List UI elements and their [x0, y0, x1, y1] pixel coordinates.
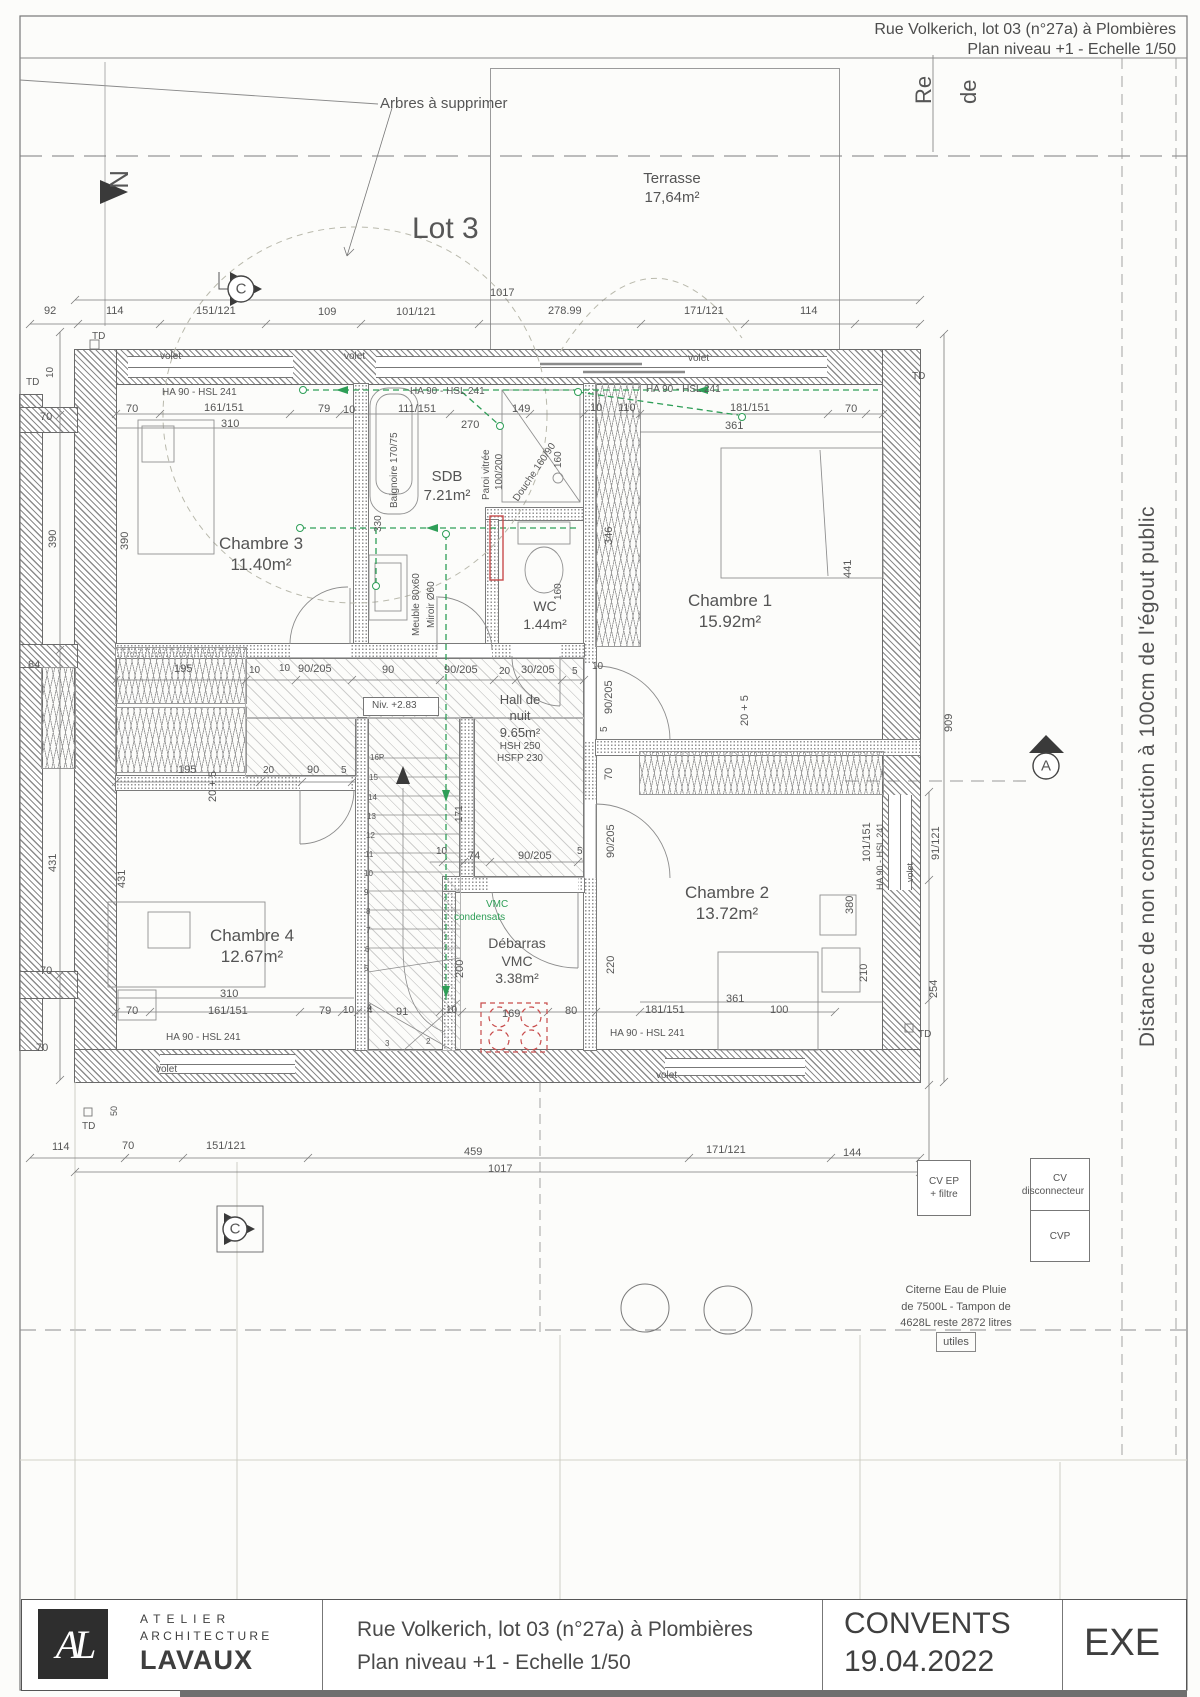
- dim-label: 90/205: [444, 665, 478, 676]
- dim-label: 254: [929, 980, 940, 998]
- cvp-box: CVP: [1030, 1210, 1090, 1262]
- dim-label: TD: [92, 332, 105, 342]
- dim-label: 270: [461, 420, 479, 431]
- door-opening: [584, 801, 596, 878]
- room-label-line: 12.67m²: [210, 946, 294, 967]
- room-label-line: Terrasse: [643, 170, 701, 189]
- level-note: Niv. +2.83: [372, 701, 417, 711]
- room-label-chambre-2: Chambre 213.72m²: [685, 882, 769, 925]
- dim-label: 4: [367, 1006, 373, 1016]
- room-label-line: 3.38m²: [488, 970, 546, 988]
- window-bottom-1: [160, 1054, 295, 1074]
- door-opening: [437, 644, 492, 658]
- sheet-header-line2: Plan niveau +1 - Echelle 1/50: [874, 40, 1176, 60]
- room-label-line: 9.65m²: [497, 725, 543, 741]
- door-opening: [512, 644, 560, 658]
- dim-label: 10: [446, 1006, 457, 1016]
- dim-label: 10: [590, 403, 602, 414]
- dim-label: 74: [468, 851, 480, 862]
- dim-label: 161/151: [204, 403, 244, 414]
- dim-label: 91/121: [931, 826, 942, 860]
- dim-label: 346: [604, 527, 615, 545]
- dim-label: Douche 160/90: [512, 442, 558, 504]
- dim-label: 92: [44, 306, 56, 317]
- dim-label: 20 + 5: [740, 695, 751, 726]
- dim-label: 310: [221, 419, 239, 430]
- stair-step-number: 2: [426, 1038, 430, 1046]
- room-label-chambre-4: Chambre 412.67m²: [210, 925, 294, 968]
- dim-label: 90/205: [518, 851, 552, 862]
- dim-label: 171/121: [684, 306, 724, 317]
- partition-wc-top: [486, 508, 586, 520]
- dim-label: TD: [26, 378, 39, 388]
- dim-label: 80: [565, 1006, 577, 1017]
- door-opening: [290, 644, 350, 658]
- dim-label: 330: [374, 515, 384, 532]
- dim-label: 70: [36, 1043, 48, 1054]
- dim-label: 70: [40, 966, 52, 977]
- dim-label: 101/121: [396, 307, 436, 318]
- stair-step-number: 5: [364, 965, 368, 973]
- room-label-line: SDB: [424, 468, 471, 487]
- dim-label: 160: [554, 451, 564, 468]
- dim-label: 90/205: [298, 664, 332, 675]
- dim-label: 20: [499, 667, 510, 677]
- architect-name-line: ARCHITECTURE: [140, 1629, 272, 1643]
- dim-label: 10: [436, 847, 447, 857]
- dim-label: TD: [82, 1122, 95, 1132]
- stair-step-number: 9: [364, 889, 368, 897]
- title-block-divider: [1062, 1600, 1063, 1690]
- architect-name-line: ATELIER: [140, 1612, 272, 1626]
- room-label-line: Chambre 4: [210, 925, 294, 946]
- dim-label: 109: [318, 307, 336, 318]
- dim-label: 5: [341, 766, 347, 776]
- room-label-sub: HSH 250: [497, 741, 543, 753]
- stair-step-number: 7: [366, 927, 370, 935]
- room-label-line: Chambre 3: [219, 533, 303, 554]
- dim-label: HA 90 - HSL 241: [162, 388, 237, 398]
- partition-wc-left: [486, 520, 498, 644]
- drawing-status: EXE: [1084, 1622, 1160, 1665]
- cv-ep-label: + filtre: [918, 1188, 970, 1201]
- dim-label: 459: [464, 1147, 482, 1158]
- dim-label: 441: [843, 560, 854, 578]
- drawing-sheet: Rue Volkerich, lot 03 (n°27a) à Plombièr…: [0, 0, 1200, 1697]
- cistern-line: Citerne Eau de Pluie: [876, 1282, 1036, 1299]
- room-label-line: 1.44m²: [523, 616, 567, 634]
- stair-floor: [368, 718, 460, 1050]
- sheet-header-line1: Rue Volkerich, lot 03 (n°27a) à Plombièr…: [874, 20, 1176, 40]
- neighbour-wall: [20, 395, 42, 1050]
- dim-label: HA 90 - HSL 241: [166, 1033, 241, 1043]
- cv-disconnecteur-label: CV: [1031, 1172, 1089, 1185]
- cvp-label: CVP: [1031, 1230, 1089, 1243]
- dim-label: 161/151: [208, 1006, 248, 1017]
- dim-label: 181/151: [730, 403, 770, 414]
- dim-label: 5: [572, 667, 578, 677]
- dim-label: 909: [944, 714, 955, 732]
- dim-label: 10: [592, 662, 603, 672]
- client-name: CONVENTS: [844, 1605, 1011, 1643]
- stair-step-number: 8: [366, 908, 370, 916]
- dim-label: 431: [48, 854, 59, 872]
- dim-label: 114: [106, 306, 124, 317]
- dim-label: Baignoire 170/75: [390, 432, 400, 508]
- project-title: Rue Volkerich, lot 03 (n°27a) à Plombièr…: [357, 1614, 753, 1679]
- title-block-divider: [322, 1600, 323, 1690]
- room-label-line: 13.72m²: [685, 903, 769, 924]
- cistern-line: de 7500L - Tampon de: [876, 1299, 1036, 1316]
- dim-label: 10: [279, 664, 290, 674]
- dim-label: 70: [126, 404, 138, 415]
- dim-label: volet: [344, 352, 365, 362]
- dim-label: 84: [28, 660, 40, 671]
- dim-label: 90/205: [604, 680, 615, 714]
- room-label-chambre-1: Chambre 115.92m²: [688, 590, 772, 633]
- dim-label: 20: [263, 766, 274, 776]
- cv-ep-box: CV EP + filtre: [917, 1160, 971, 1216]
- stair-step-number: 16P: [370, 754, 384, 762]
- window-top-1: [128, 356, 293, 378]
- dim-label: 200: [455, 960, 466, 978]
- window-top-2: [376, 356, 827, 378]
- dim-label: HA 90 - HSL 241: [876, 823, 885, 890]
- trees-note: Arbres à supprimer: [380, 96, 508, 111]
- closet-hall-left-1: [116, 648, 246, 703]
- dim-label: 70: [604, 768, 615, 780]
- dim-label: 90: [307, 765, 319, 776]
- exterior-wall-left: [75, 350, 116, 1050]
- dim-label: 70: [126, 1006, 138, 1017]
- room-label-line: 15.92m²: [688, 611, 772, 632]
- dim-label: volet: [906, 863, 915, 882]
- dim-label: HA 90 - HSL 241: [410, 387, 485, 397]
- room-label-line: Hall de: [497, 692, 543, 708]
- room-label-chambre-3: Chambre 311.40m²: [219, 533, 303, 576]
- dim-label: 79: [319, 1006, 331, 1017]
- closet-chambre2: [640, 752, 883, 794]
- dim-label: 114: [800, 306, 818, 317]
- sheet-header: Rue Volkerich, lot 03 (n°27a) à Plombièr…: [874, 20, 1176, 60]
- lot-label: Lot 3: [412, 214, 479, 244]
- stair-step-number: 10: [364, 870, 373, 878]
- dim-label: 151/121: [196, 306, 236, 317]
- dim-label: Meuble 80x60: [412, 573, 422, 636]
- cv-ep-label: CV EP: [918, 1175, 970, 1188]
- dim-label: 70: [122, 1141, 134, 1152]
- stair-wall-left: [356, 718, 368, 1050]
- door-opening: [488, 877, 578, 892]
- architect-logo: AL: [38, 1609, 108, 1679]
- dim-label: 20 + 5: [208, 771, 219, 802]
- dim-label: 100/200: [495, 454, 505, 490]
- dim-label: volet: [160, 352, 181, 362]
- room-label-hall-de-nuit: Hall denuit9.65m²HSH 250HSFP 230: [497, 692, 543, 765]
- dim-label: 91: [396, 1007, 408, 1018]
- room-label-line: 7.21m²: [424, 487, 471, 506]
- exterior-wall-right: [883, 350, 920, 1050]
- client-block: CONVENTS 19.04.2022: [844, 1605, 1011, 1680]
- dim-label: 10: [249, 666, 260, 676]
- section-marker-letter: C: [236, 282, 247, 297]
- room-label-line: 11.40m²: [219, 554, 303, 575]
- dim-label: 10: [343, 405, 355, 416]
- vmc-note: condensats: [454, 913, 505, 923]
- room-label-terrasse: Terrasse17,64m²: [643, 170, 701, 208]
- issue-date: 19.04.2022: [844, 1643, 1011, 1681]
- stair-step-number: 3: [385, 1040, 389, 1048]
- stair-step-number: 12: [366, 832, 375, 840]
- dim-label: 149: [512, 404, 530, 415]
- room-label-line: Débarras: [488, 935, 546, 953]
- stair-step-number: 15: [369, 774, 378, 782]
- dim-label: 171/121: [706, 1145, 746, 1156]
- window-bottom-2: [665, 1058, 805, 1076]
- dim-label: 169: [502, 1009, 520, 1020]
- project-title-line2: Plan niveau +1 - Echelle 1/50: [357, 1647, 753, 1680]
- room-label-line: 17,64m²: [643, 189, 701, 208]
- dim-label: 210: [859, 964, 870, 982]
- dim-label: 50: [110, 1106, 119, 1116]
- closet-chambre1: [596, 384, 640, 646]
- section-marker-letter: C: [230, 1222, 241, 1237]
- project-title-line1: Rue Volkerich, lot 03 (n°27a) à Plombièr…: [357, 1614, 753, 1647]
- dim-label: TD: [912, 372, 925, 382]
- partition-ch3-sdb: [354, 384, 368, 644]
- dim-label: 90: [382, 665, 394, 676]
- terrace-outline: [490, 68, 840, 352]
- dim-label: 90/205: [606, 824, 617, 858]
- dim-label: 114: [52, 1142, 70, 1153]
- dim-label: 431: [117, 870, 128, 888]
- dim-label: 1017: [490, 288, 514, 299]
- cistern-line: utiles: [936, 1332, 976, 1353]
- edge-label: Re: [913, 76, 935, 104]
- title-block: AL ATELIER ARCHITECTURE LAVAUX Rue Volke…: [21, 1599, 1187, 1691]
- dim-label: 70: [40, 412, 52, 423]
- room-label-line: nuit: [497, 708, 543, 724]
- stair-step-number: 14: [368, 794, 377, 802]
- dim-label: 110: [618, 403, 636, 414]
- dim-label: 195: [174, 664, 192, 675]
- room-label-sub: HSFP 230: [497, 753, 543, 765]
- dim-label: 111/151: [398, 404, 436, 415]
- dim-label: 70: [845, 404, 857, 415]
- cv-disconnecteur-label: disconnecteur: [1017, 1185, 1089, 1198]
- dim-label: volet: [156, 1065, 177, 1075]
- dim-label: 278.99: [548, 306, 582, 317]
- room-label-line: Chambre 1: [688, 590, 772, 611]
- dim-label: 181/151: [645, 1005, 685, 1016]
- door-opening: [584, 663, 596, 740]
- north-letter: N: [106, 170, 132, 189]
- easement-note: Distance de non construction à 100cm de …: [1136, 506, 1160, 1047]
- stair-step-number: 13: [367, 813, 376, 821]
- room-label-line: Chambre 2: [685, 882, 769, 903]
- dim-label: 380: [845, 896, 856, 914]
- stair-step-number: 11: [365, 851, 373, 859]
- room-label-wc: WC1.44m²: [523, 598, 567, 633]
- dim-label: Miroir Ø60: [427, 581, 437, 628]
- room-label-sdb: SDB7.21m²: [424, 468, 471, 506]
- room-label-debarras-vmc: DébarrasVMC3.38m²: [488, 935, 546, 988]
- stair-step-number: 6: [365, 946, 369, 954]
- dim-label: volet: [688, 354, 709, 364]
- cv-disconnecteur-box: CV disconnecteur: [1030, 1158, 1090, 1212]
- dim-label: 144: [843, 1148, 861, 1159]
- dim-label: 101/151: [862, 822, 873, 862]
- room-label-line: VMC: [488, 953, 546, 971]
- dim-label: 1017: [488, 1164, 512, 1175]
- dim-label: 220: [606, 956, 617, 974]
- dim-label: 100: [770, 1005, 788, 1016]
- dim-label: Paroi vitrée: [482, 449, 492, 500]
- dim-label: HA 90 - HSL 241: [610, 1029, 685, 1039]
- cistern-note: Citerne Eau de Pluie de 7500L - Tampon d…: [876, 1282, 1036, 1352]
- dim-label: TD: [918, 1030, 931, 1040]
- dim-label: 30/205: [521, 665, 555, 676]
- dim-label: 5: [577, 847, 583, 857]
- dim-label: volet: [656, 1071, 677, 1081]
- dim-label: 10: [46, 367, 56, 378]
- dim-label: 171: [455, 805, 465, 822]
- door-opening: [300, 776, 350, 790]
- dim-label: 10: [343, 1006, 354, 1016]
- room-label-line: WC: [523, 598, 567, 616]
- closet-hall-left-2: [116, 708, 246, 772]
- cistern-line: 4628L reste 2872 litres: [876, 1315, 1036, 1332]
- neighbour-closet: [42, 668, 75, 768]
- dim-label: 390: [120, 532, 131, 550]
- dim-label: 390: [48, 530, 59, 548]
- title-block-divider: [822, 1600, 823, 1690]
- architect-name: ATELIER ARCHITECTURE LAVAUX: [140, 1612, 272, 1676]
- architect-name-line: LAVAUX: [140, 1645, 272, 1676]
- vmc-note: VMC: [486, 900, 508, 910]
- dim-label: 151/121: [206, 1141, 246, 1152]
- dim-label: 79: [318, 404, 330, 415]
- dim-label: 5: [600, 726, 610, 732]
- edge-label: de: [958, 80, 980, 104]
- dim-label: 195: [178, 765, 196, 776]
- dim-label: 310: [220, 989, 238, 1000]
- dim-label: HA 90 - HSL 241: [646, 385, 721, 395]
- dim-label: 361: [726, 994, 744, 1005]
- scan-edge-bar: [180, 1690, 1187, 1697]
- section-marker-letter: A: [1041, 759, 1051, 774]
- dim-label: 361: [725, 421, 743, 432]
